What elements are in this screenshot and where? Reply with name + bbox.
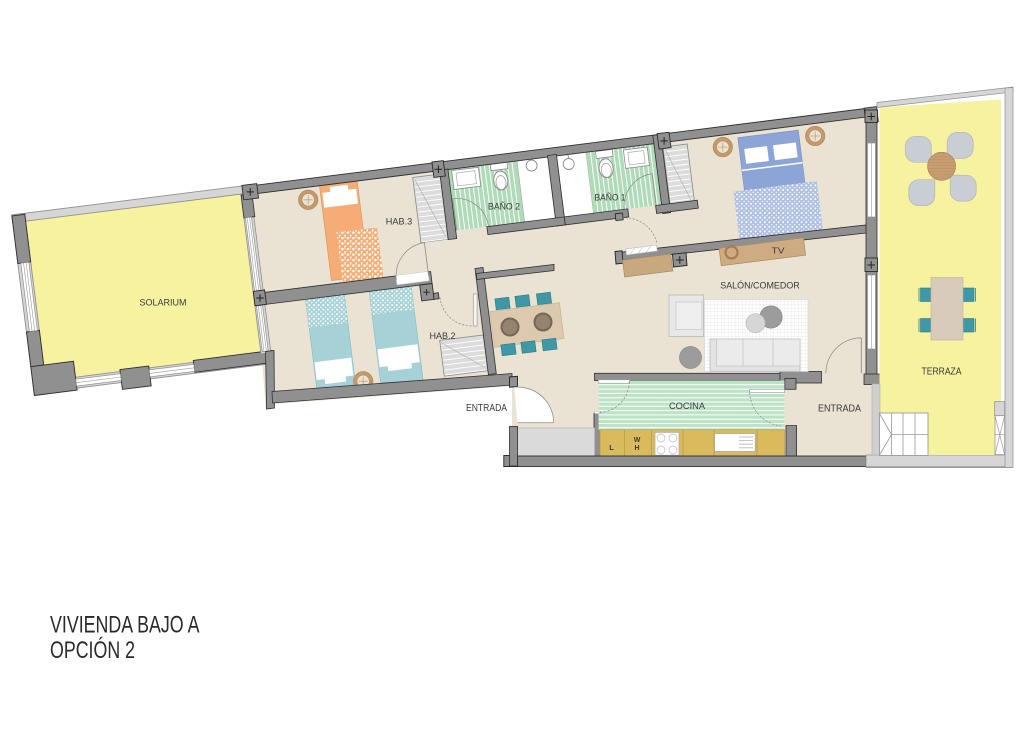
svg-text:BAÑO 2: BAÑO 2 — [488, 202, 520, 213]
svg-text:VIVIENDA BAJO A: VIVIENDA BAJO A — [50, 612, 200, 639]
svg-text:SOLARIUM: SOLARIUM — [140, 298, 187, 309]
svg-text:SALÓN/COMEDOR: SALÓN/COMEDOR — [720, 281, 800, 292]
svg-text:TV: TV — [772, 246, 785, 256]
svg-text:H: H — [634, 445, 639, 452]
svg-text:COCINA: COCINA — [669, 401, 706, 412]
svg-text:HAB.2: HAB.2 — [430, 331, 456, 342]
svg-text:L: L — [609, 443, 614, 452]
svg-text:OPCIÓN 2: OPCIÓN 2 — [50, 637, 135, 664]
svg-text:TERRAZA: TERRAZA — [922, 367, 962, 378]
svg-text:ENTRADA: ENTRADA — [466, 402, 507, 414]
svg-text:W: W — [634, 437, 641, 444]
svg-text:HAB.3: HAB.3 — [386, 217, 413, 228]
svg-text:ENTRADA: ENTRADA — [818, 403, 861, 415]
svg-text:BAÑO 1: BAÑO 1 — [595, 193, 626, 204]
